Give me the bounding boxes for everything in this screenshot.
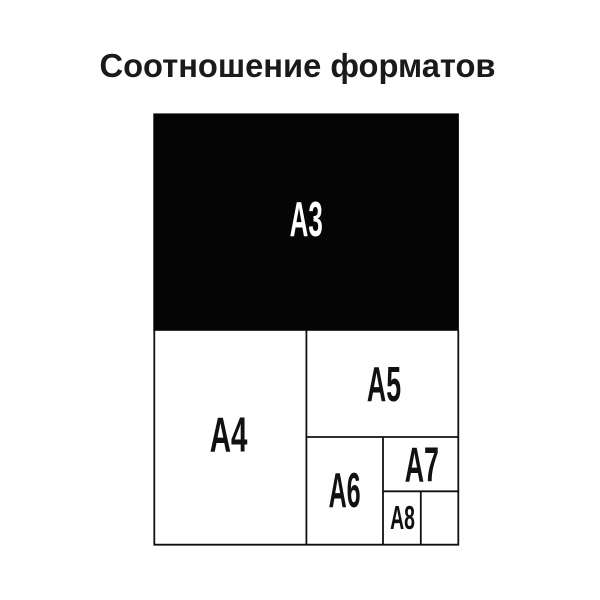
- svg-text:A8: A8: [390, 500, 415, 537]
- svg-text:Соотношение форматов: Соотношение форматов: [100, 47, 496, 84]
- svg-text:A3: A3: [290, 192, 323, 247]
- svg-text:A7: A7: [405, 438, 439, 493]
- svg-text:A5: A5: [367, 357, 401, 412]
- svg-text:A6: A6: [329, 464, 361, 518]
- svg-text:A4: A4: [210, 407, 248, 463]
